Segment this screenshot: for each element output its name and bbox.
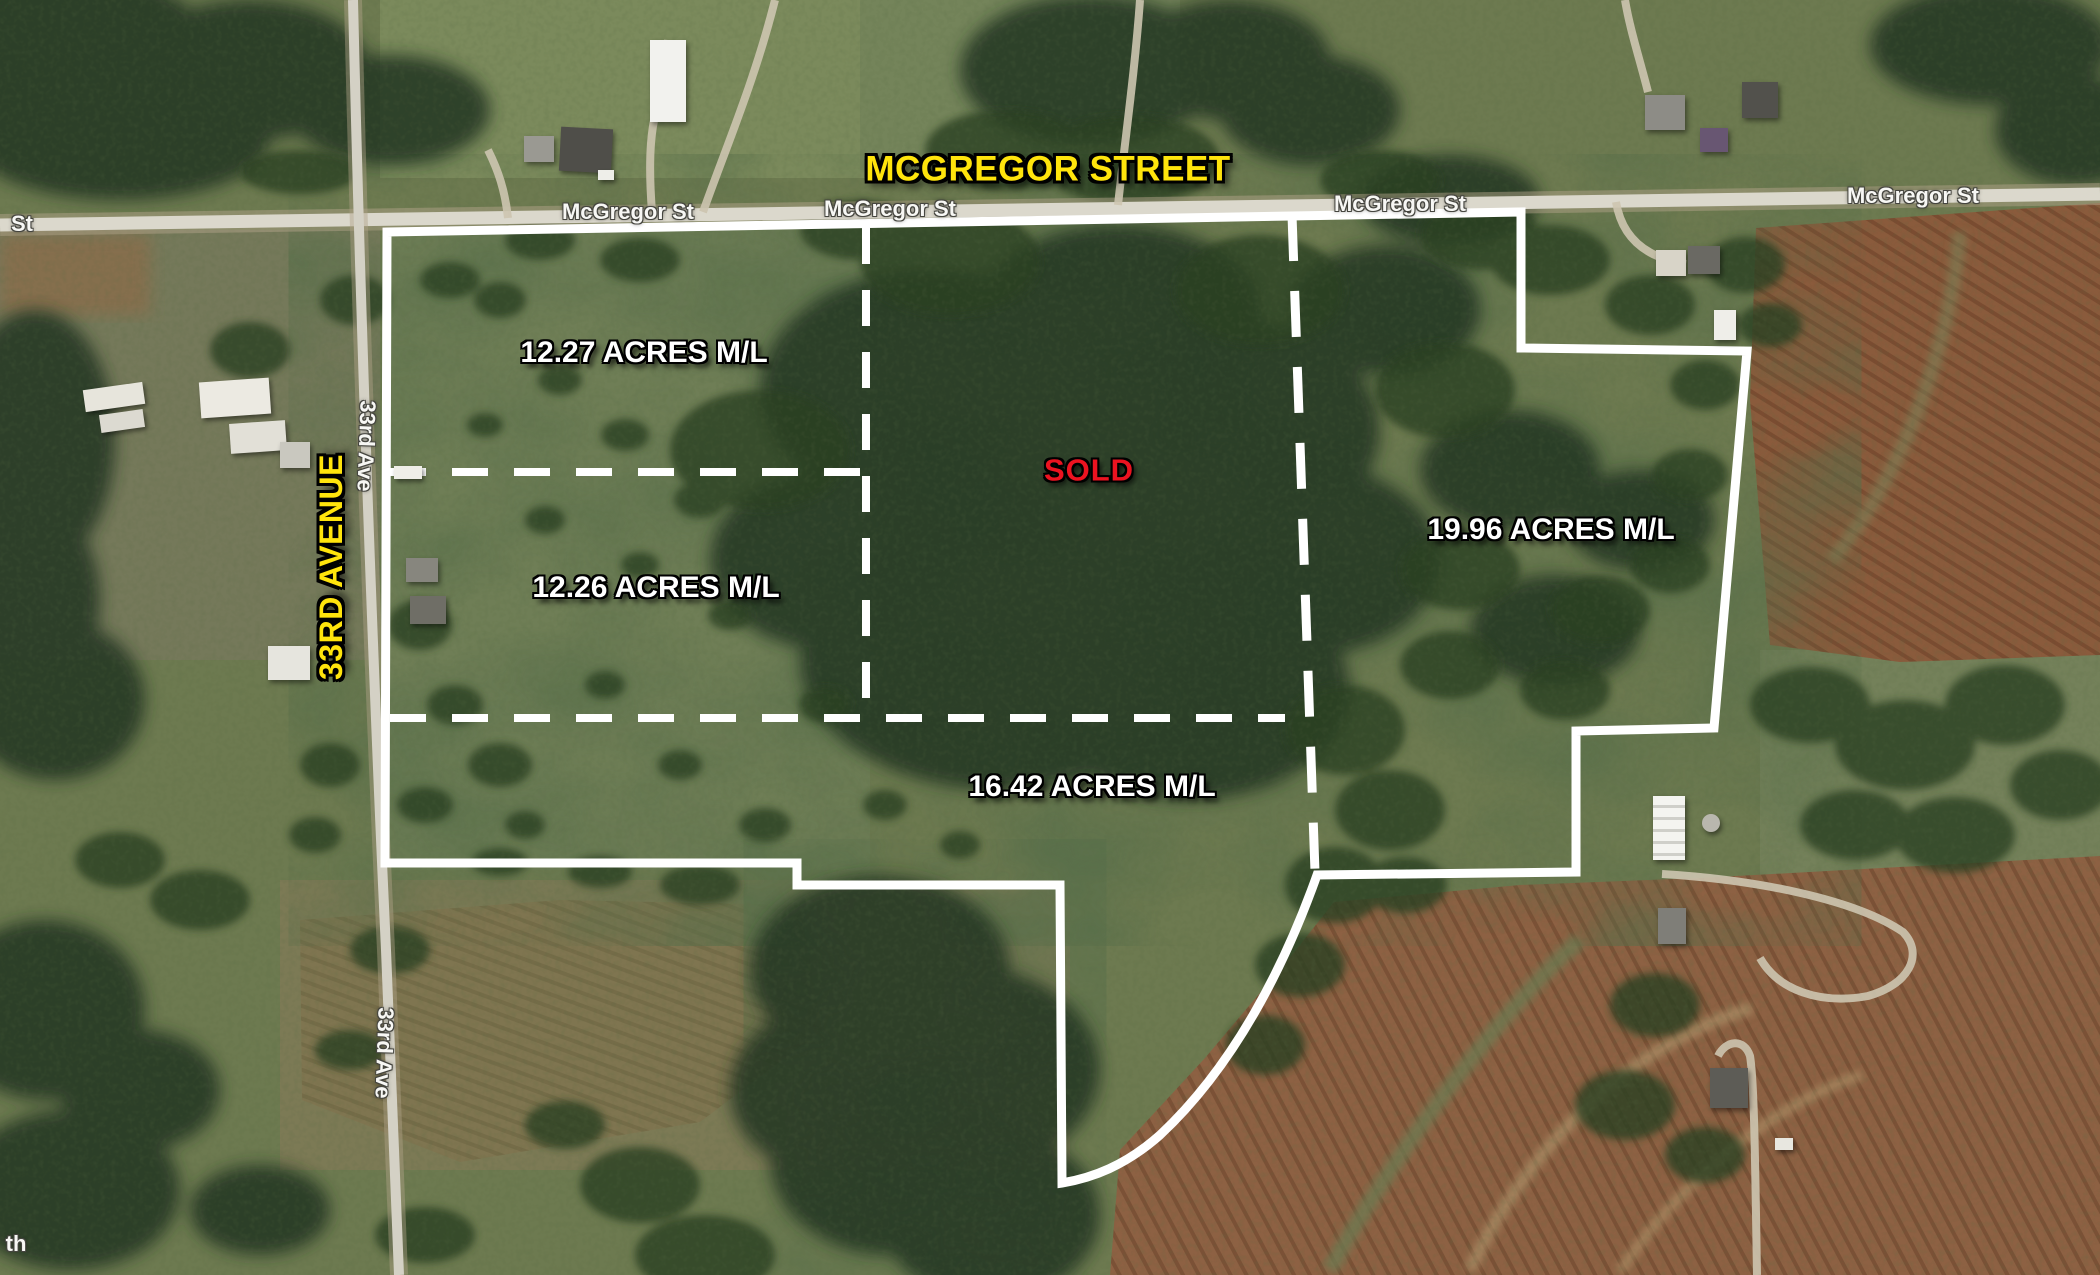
building <box>406 558 438 582</box>
building <box>1688 246 1720 274</box>
building <box>1653 796 1685 860</box>
building <box>1656 250 1686 276</box>
mcgregor-street-banner: MCGREGOR STREET <box>865 152 1230 187</box>
33rd-avenue-banner: 33RD AVENUE <box>315 454 347 680</box>
building <box>1645 95 1685 130</box>
33rd-ave-map-label: 33rd Ave <box>371 1007 396 1099</box>
parcel-label-12-27: 12.27 ACRES M/L <box>520 338 767 368</box>
mcgregor-st-map-label: McGregor St <box>1847 185 1979 207</box>
building <box>1658 908 1686 944</box>
building <box>559 127 613 174</box>
33rd-ave-map-label: 33rd Ave <box>353 400 378 492</box>
parcel-label-12-26: 12.26 ACRES M/L <box>532 573 779 603</box>
building <box>524 136 554 162</box>
building <box>1775 1138 1793 1150</box>
building <box>280 442 310 468</box>
building <box>650 40 686 122</box>
mcgregor-st-map-label: McGregor St <box>1334 193 1466 215</box>
building <box>229 420 287 454</box>
building <box>410 596 446 624</box>
street-label-partial-bottom: th <box>6 1233 27 1255</box>
sold-badge: SOLD <box>1044 455 1134 486</box>
street-label-partial-left: St <box>11 213 33 235</box>
mcgregor-st-map-label: McGregor St <box>824 198 956 220</box>
parcel-label-19-96: 19.96 ACRES M/L <box>1427 515 1674 545</box>
grain-bin <box>1702 814 1720 832</box>
building <box>199 378 271 419</box>
parcel-label-16-42: 16.42 ACRES M/L <box>968 772 1215 802</box>
building <box>394 466 422 479</box>
aerial-map: MCGREGOR STREET 33RD AVENUE McGregor St … <box>0 0 2100 1275</box>
building <box>598 170 614 180</box>
building <box>1710 1068 1748 1108</box>
building <box>1714 310 1736 340</box>
mcgregor-st-map-label: McGregor St <box>562 201 694 223</box>
building <box>268 646 310 680</box>
building <box>1700 128 1728 152</box>
building <box>1742 82 1778 118</box>
